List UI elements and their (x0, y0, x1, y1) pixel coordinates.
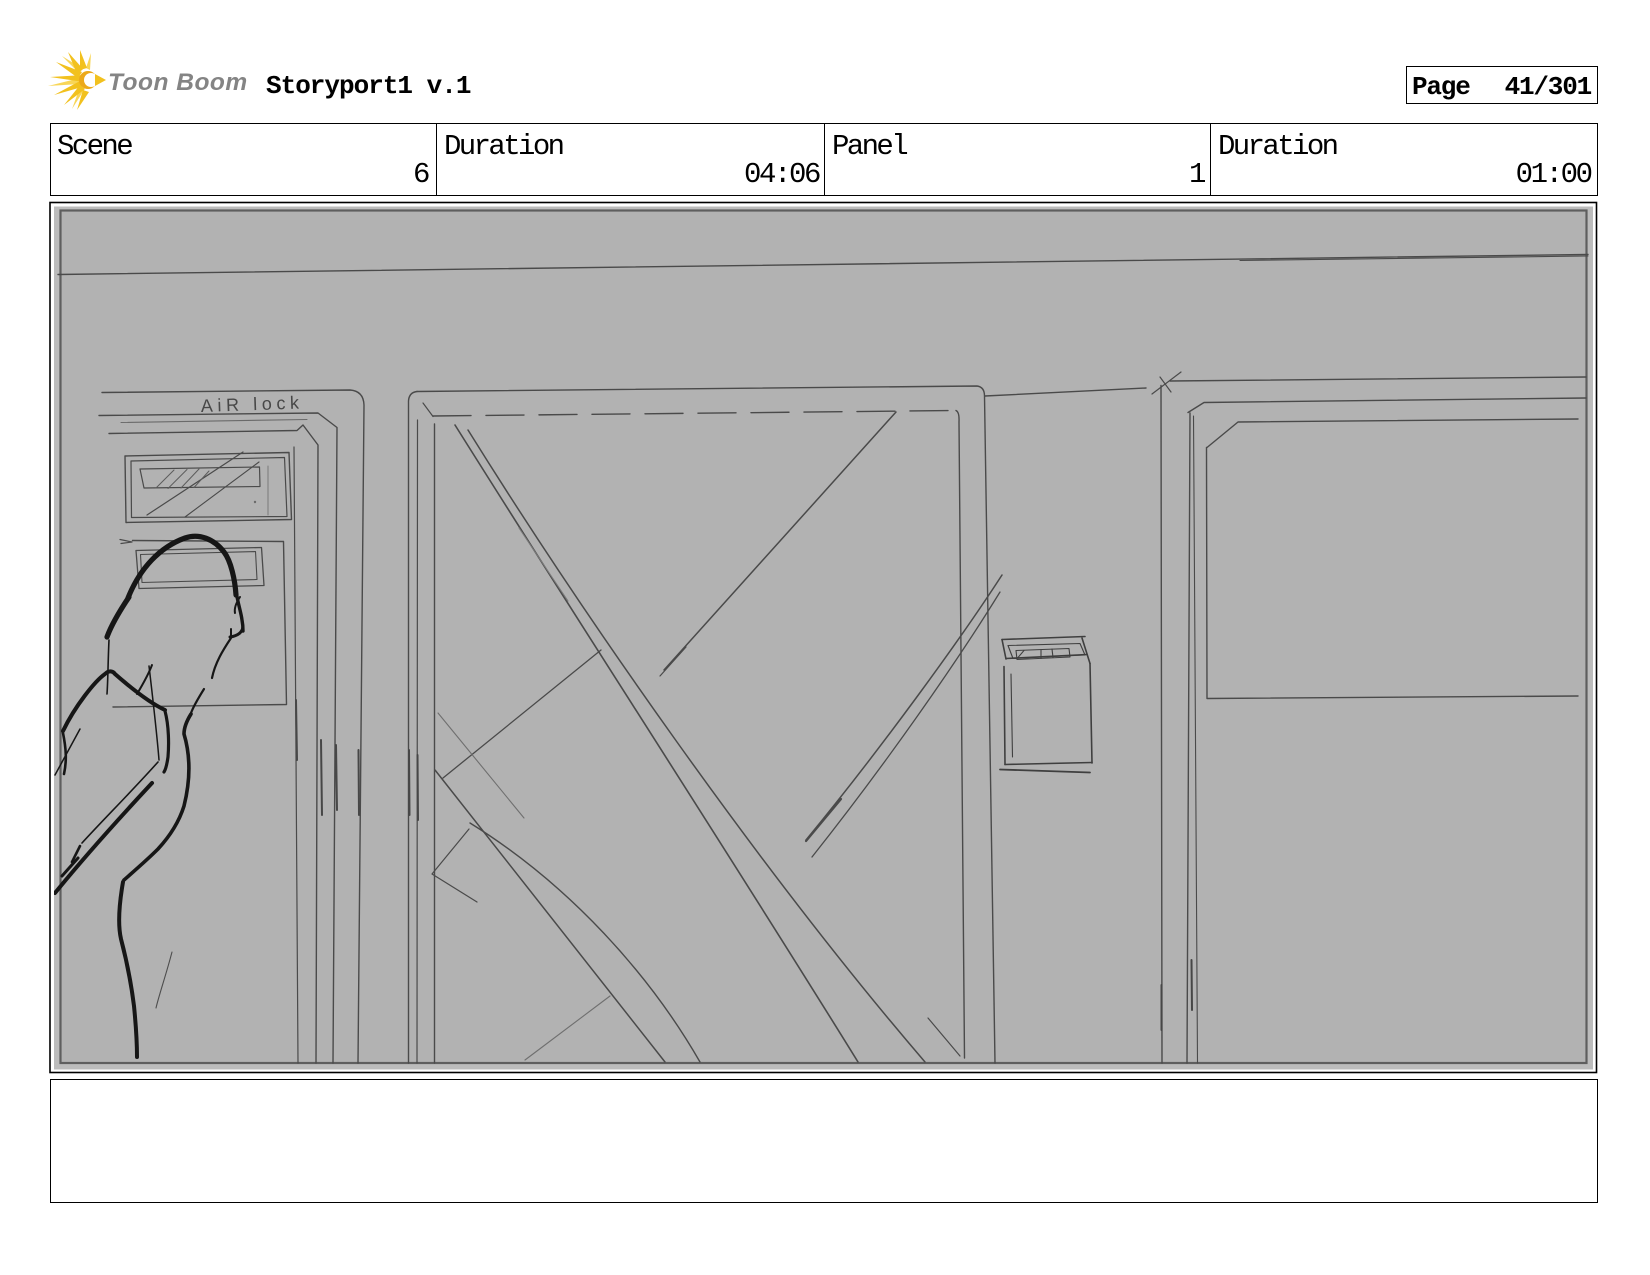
svg-text:AiR lock: AiR lock (200, 392, 303, 416)
